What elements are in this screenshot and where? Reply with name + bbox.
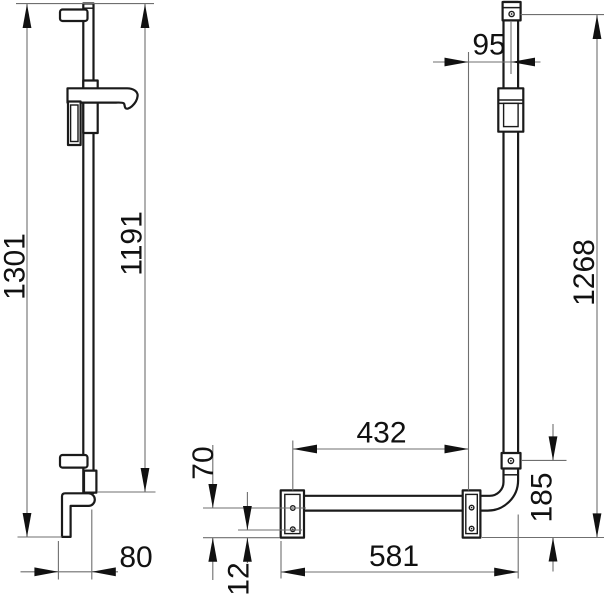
rail-lower-wall-bracket xyxy=(60,455,88,468)
label-corner-to-plate-bottom: 185 xyxy=(526,472,559,522)
label-rail-bottom-offset: 80 xyxy=(119,541,152,574)
arrow-185-bottom xyxy=(549,538,558,562)
technical-drawing: 1301 1191 80 95 432 70 12 581 1268 185 xyxy=(0,0,606,600)
arrow-185-top xyxy=(549,436,558,460)
joint-block-screw-dot xyxy=(510,460,512,462)
arrow-581-right xyxy=(494,568,518,577)
arrow-432-left xyxy=(293,445,317,454)
label-rail-total-height: 1301 xyxy=(0,233,32,300)
arrow-1268-up xyxy=(593,15,602,39)
slider-block-inner xyxy=(504,103,518,126)
arrow-1301-up xyxy=(23,4,32,28)
right-plate-lower-screw-dot xyxy=(471,528,473,530)
drawing-canvas: 1301 1191 80 95 432 70 12 581 1268 185 xyxy=(0,0,606,600)
label-bar-overall-length: 581 xyxy=(369,540,419,573)
rail-upper-wall-bracket xyxy=(60,10,88,22)
arrow-12-bottom xyxy=(243,538,252,562)
label-hole-to-plate-edge: 12 xyxy=(223,562,256,595)
holder-grip-knob-inner xyxy=(71,105,78,142)
label-plate-hole-spacing: 432 xyxy=(356,417,406,450)
arrow-581-left xyxy=(281,568,305,577)
arrow-80-left xyxy=(34,567,58,576)
corner-grab-bar-figure xyxy=(281,2,524,538)
arrow-70-bottom xyxy=(208,538,217,562)
right-plate-upper-screw-dot xyxy=(471,507,473,509)
arrow-1301-down xyxy=(23,513,32,537)
top-cap-screw-dot xyxy=(511,13,513,15)
label-vertical-bar-height: 1268 xyxy=(568,239,601,306)
shower-rail-tube xyxy=(83,4,93,494)
arrow-80-right xyxy=(92,567,116,576)
arrow-1268-down xyxy=(593,513,602,537)
arrow-95-left xyxy=(445,58,469,67)
label-rail-upper-section: 1191 xyxy=(116,211,149,276)
corner-bend-and-horizontal-bar xyxy=(285,468,518,511)
rail-lower-end-block xyxy=(84,471,96,493)
arrow-432-right xyxy=(445,445,469,454)
label-plate-drop-below-bar: 70 xyxy=(187,446,220,479)
label-bar-top-offset: 95 xyxy=(472,29,505,62)
arrow-70-top xyxy=(208,484,217,508)
arrow-1191-down xyxy=(141,468,150,492)
supply-elbow xyxy=(62,493,95,537)
arrow-12-top xyxy=(243,506,252,530)
arrow-1191-up xyxy=(141,4,150,28)
